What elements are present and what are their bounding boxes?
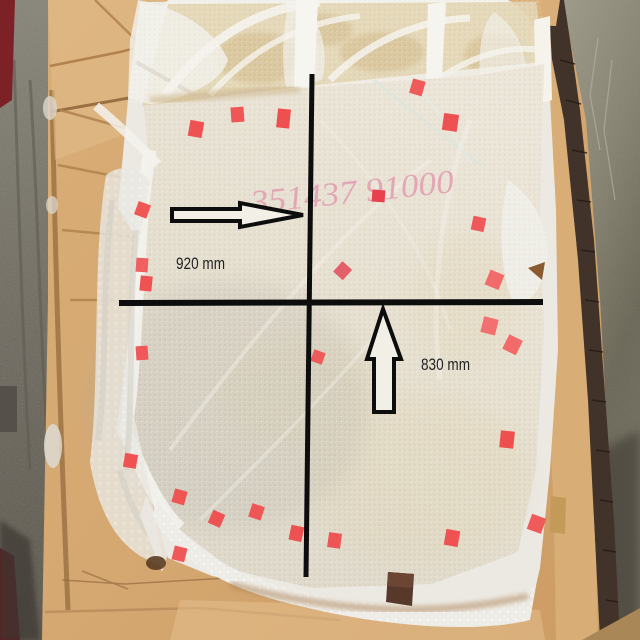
svg-text:920 mm: 920 mm: [176, 255, 225, 273]
svg-text:830 mm: 830 mm: [421, 356, 470, 374]
